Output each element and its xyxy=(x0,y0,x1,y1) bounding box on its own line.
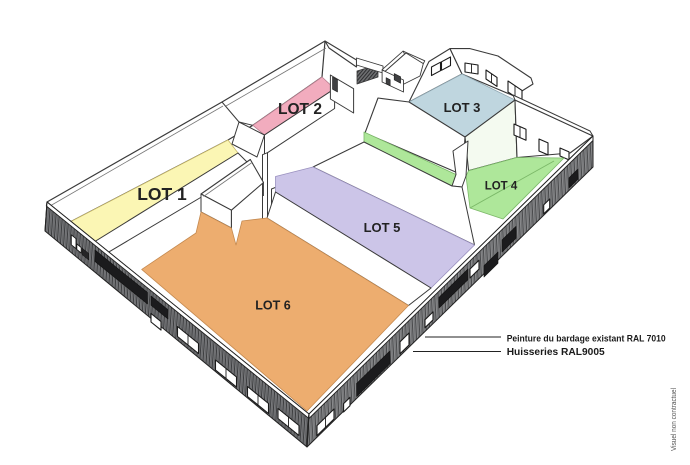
svg-text:LOT 1: LOT 1 xyxy=(137,184,187,204)
svg-text:LOT 6: LOT 6 xyxy=(255,299,290,313)
svg-text:LOT 4: LOT 4 xyxy=(485,181,518,193)
svg-text:Huisseries RAL9005: Huisseries RAL9005 xyxy=(507,347,605,358)
svg-text:Visuel non contractuel: Visuel non contractuel xyxy=(669,388,678,451)
svg-text:Peinture du bardage existant R: Peinture du bardage existant RAL 7010 xyxy=(507,334,666,345)
svg-text:LOT 5: LOT 5 xyxy=(364,220,401,235)
svg-text:LOT 2: LOT 2 xyxy=(278,101,322,118)
svg-text:LOT 3: LOT 3 xyxy=(444,100,481,115)
